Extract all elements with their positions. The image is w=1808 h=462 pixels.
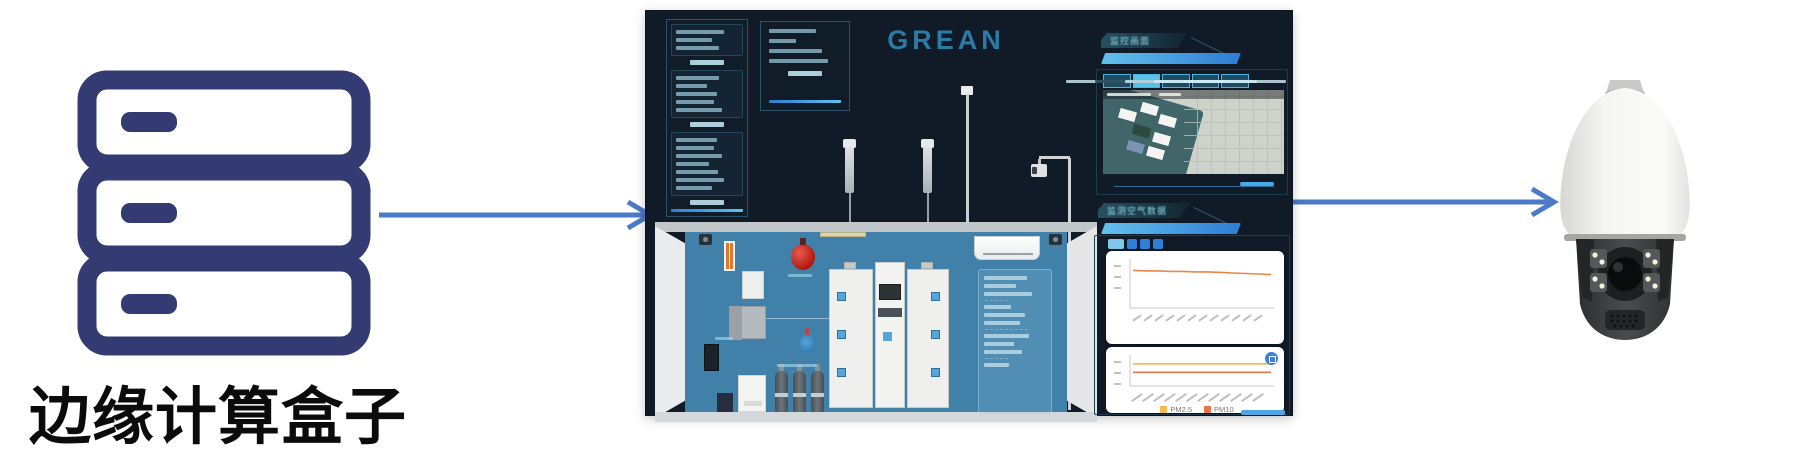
- equipment-label-skeleton: [777, 364, 817, 367]
- access-device: [704, 344, 719, 371]
- gas-cylinder: [811, 371, 824, 412]
- video-channel-tabs: [1103, 74, 1249, 88]
- camera-dome: [1560, 88, 1690, 238]
- x-tick-skeleton: [1143, 314, 1152, 321]
- ups-cabinet: [738, 375, 766, 412]
- y-tick-skeleton: [1114, 383, 1121, 385]
- probe-inlet-cap: [921, 262, 933, 269]
- x-axis-tick-skeletons: [1114, 391, 1280, 404]
- overlay-row-skeleton: [984, 342, 1014, 346]
- section-header: [671, 121, 743, 129]
- sampling-probe-handle: [845, 147, 854, 193]
- data-row-skeleton: [676, 30, 724, 34]
- panel-accent-bar: [1101, 223, 1241, 234]
- line-chart: [1120, 257, 1276, 311]
- x-tick-skeleton: [1142, 393, 1154, 402]
- data-section: [671, 24, 743, 56]
- cabinet-screen: [879, 284, 901, 300]
- overlay-row-skeleton: [984, 358, 1009, 367]
- room-ceiling: [655, 222, 1097, 232]
- legend-item[interactable]: PM2.5: [1160, 405, 1192, 414]
- x-tick-skeleton: [1252, 393, 1264, 402]
- x-tick-skeleton: [1176, 314, 1185, 321]
- wall-camera-icon: [1049, 234, 1062, 245]
- info-row-skeleton: [769, 59, 828, 63]
- chart-toolbar: [1108, 239, 1163, 249]
- legend-label: PM2.5: [1170, 405, 1192, 414]
- air-conditioner-icon: [974, 236, 1040, 260]
- chart-toolbar-chip[interactable]: [1140, 239, 1150, 249]
- series-颗粒物: [1133, 270, 1271, 274]
- x-tick-skeleton: [1253, 314, 1262, 321]
- tab-label-skeleton: [1184, 80, 1286, 83]
- fire-suppression-ball-icon: [791, 244, 815, 270]
- video-panel-header: 监控画面: [1101, 33, 1187, 48]
- wall-camera-icon: [699, 234, 712, 245]
- station-info-box: [760, 21, 850, 111]
- overlay-row-skeleton: [984, 300, 1011, 309]
- x-tick-skeleton: [1241, 393, 1253, 402]
- ptz-dome-camera: [1546, 78, 1704, 344]
- chart-toolbar-chip[interactable]: [1153, 239, 1163, 249]
- section-header: [671, 199, 743, 207]
- feed-tile-floor: [1184, 90, 1284, 174]
- cabinet-display: [931, 368, 940, 377]
- info-row-skeleton: [769, 49, 822, 53]
- data-row-skeleton: [676, 170, 718, 174]
- osd-timestamp-skeleton: [1107, 93, 1151, 96]
- legend-label: PM10: [1214, 405, 1234, 414]
- camera-lens: [1608, 257, 1642, 291]
- wall-device: [742, 271, 764, 299]
- chart-expand-button[interactable]: [1265, 352, 1278, 365]
- data-row-skeleton: [676, 154, 722, 158]
- data-row-skeleton: [676, 178, 724, 182]
- x-tick-skeleton: [1131, 393, 1143, 402]
- x-tick-skeleton: [1175, 393, 1187, 402]
- ir-led-plate: [1590, 273, 1607, 292]
- x-tick-skeleton: [1231, 314, 1240, 321]
- data-row-skeleton: [676, 84, 707, 88]
- camera-mount-arm: [1039, 156, 1070, 159]
- ir-led-plate: [1643, 273, 1660, 292]
- speaker-grille: [1605, 310, 1645, 330]
- room-wall-right: [1067, 226, 1097, 418]
- cabinet-display: [931, 292, 940, 301]
- air-panel-header: 监测空气数据: [1098, 203, 1190, 218]
- equipment-label-skeleton: [715, 337, 733, 340]
- pm-trend-chart-card: PM2.5PM10: [1106, 347, 1284, 413]
- monitoring-dashboard: GREAN: [645, 10, 1293, 416]
- cabinet-display: [837, 368, 846, 377]
- data-section: [671, 70, 743, 118]
- info-row-skeleton: [769, 39, 796, 43]
- data-row-skeleton: [676, 100, 714, 104]
- cabinet-display: [931, 330, 940, 339]
- osd-label-skeleton: [1159, 93, 1181, 96]
- data-row-skeleton: [676, 162, 709, 166]
- x-tick-skeleton: [1197, 393, 1209, 402]
- x-tick-skeleton: [1220, 314, 1229, 321]
- arrow-dashboard-to-camera: [1283, 182, 1568, 222]
- figure-canvas: { "diagram": { "arrow_color": "#4a7ac8",…: [0, 0, 1808, 462]
- overlay-row-skeleton: [984, 313, 1025, 317]
- video-tab-5[interactable]: [1221, 74, 1249, 88]
- y-axis-skeleton: [1114, 265, 1121, 289]
- particulate-trend-chart-card: [1106, 251, 1284, 344]
- info-title-skeleton: [788, 71, 821, 76]
- x-tick-skeleton: [1219, 393, 1231, 402]
- x-tick-skeleton: [1154, 314, 1163, 321]
- x-tick-skeleton: [1164, 393, 1176, 402]
- line-chart: [1120, 353, 1276, 389]
- room-wall-left: [655, 226, 685, 418]
- overlay-row-skeleton: [984, 350, 1022, 354]
- x-tick-skeleton: [1242, 314, 1251, 321]
- section-title-skeleton: [690, 200, 723, 205]
- overlay-row-skeleton: [984, 321, 1020, 325]
- small-cabinet: [717, 393, 733, 412]
- air-panel-title: 监测空气数据: [1107, 204, 1167, 217]
- y-tick-skeleton: [1114, 361, 1121, 363]
- x-tick-skeleton: [1209, 314, 1218, 321]
- panel-footer-accent: [671, 209, 743, 212]
- room-data-overlay: [978, 269, 1052, 414]
- y-tick-skeleton: [1114, 276, 1121, 278]
- x-axis-tick-skeletons: [1114, 313, 1280, 326]
- x-tick-skeleton: [1230, 393, 1242, 402]
- chart-toolbar-chip[interactable]: [1127, 239, 1137, 249]
- edge-box-label: 边缘计算盒子: [0, 366, 436, 456]
- y-tick-skeleton: [1114, 287, 1121, 289]
- legend-item[interactable]: PM10: [1204, 405, 1234, 414]
- cabinet-display: [837, 292, 846, 301]
- section-title-skeleton: [690, 122, 723, 127]
- server-stack-icon: [75, 70, 373, 356]
- panel-bottom-decoration: [1114, 181, 1274, 187]
- monitoring-cabinet-right: [907, 269, 949, 408]
- ceiling-camera-icon: [1031, 164, 1047, 177]
- data-row-skeleton: [676, 38, 712, 42]
- y-tick-skeleton: [1114, 265, 1121, 267]
- cabinet-display: [837, 330, 846, 339]
- cabinet-display: [883, 332, 892, 341]
- probe-inlet-cap: [844, 262, 856, 269]
- x-tick-skeleton: [1187, 314, 1196, 321]
- data-row-skeleton: [676, 186, 712, 190]
- y-tick-skeleton: [1114, 372, 1121, 374]
- overlay-row-skeleton: [984, 276, 1027, 280]
- panel-accent-bar: [1101, 53, 1241, 64]
- equipment-label-skeleton: [788, 274, 812, 277]
- section-header: [671, 59, 743, 67]
- overlay-row-skeleton: [984, 284, 1016, 288]
- station-room-scene: [655, 222, 1097, 422]
- brand-logo: GREAN: [826, 25, 1066, 56]
- legend-marker: [1160, 406, 1167, 413]
- x-tick-skeleton: [1208, 393, 1220, 402]
- x-tick-skeleton: [1153, 393, 1165, 402]
- ceiling-light: [820, 232, 866, 237]
- overlay-row-skeleton: [984, 292, 1032, 296]
- gas-cylinder: [793, 371, 806, 412]
- x-tick-skeleton: [1165, 314, 1174, 321]
- info-footer: [769, 69, 841, 78]
- left-data-panel: [666, 19, 748, 217]
- data-row-skeleton: [676, 108, 722, 112]
- data-row-skeleton: [676, 76, 719, 80]
- data-row-skeleton: [676, 146, 714, 150]
- ir-led-plate: [1590, 249, 1607, 268]
- sampling-probe-handle: [923, 147, 932, 193]
- cable-run: [766, 318, 829, 319]
- data-row-skeleton: [676, 46, 719, 50]
- ir-led-plate: [1643, 249, 1660, 268]
- feed-osd-bar: [1103, 90, 1284, 99]
- info-row-skeleton: [769, 29, 816, 33]
- calibration-device: [724, 241, 735, 271]
- monitoring-cabinet-left: [829, 269, 873, 408]
- x-tick-skeleton: [1132, 314, 1141, 321]
- y-axis-skeleton: [1114, 361, 1121, 385]
- data-row-skeleton: [676, 138, 717, 142]
- section-title-skeleton: [690, 60, 723, 65]
- cabinet-control-panel: [878, 308, 902, 317]
- x-tick-skeleton: [1186, 393, 1198, 402]
- gas-cylinder: [775, 371, 788, 412]
- data-row-skeleton: [676, 92, 717, 96]
- chart-toolbar-chip[interactable]: [1108, 239, 1124, 249]
- control-box: [729, 306, 766, 339]
- legend-marker: [1204, 406, 1211, 413]
- data-section: [671, 132, 743, 196]
- camera-feed-image[interactable]: [1103, 90, 1284, 174]
- video-panel-title: 监控画面: [1110, 34, 1150, 47]
- overlay-row-skeleton: [984, 329, 1029, 338]
- x-tick-skeleton: [1198, 314, 1207, 321]
- info-footer-accent: [769, 100, 841, 103]
- pump-device: [800, 335, 815, 353]
- arrow-edgebox-to-dashboard: [375, 195, 660, 235]
- panel-bottom-accent: [1241, 410, 1285, 415]
